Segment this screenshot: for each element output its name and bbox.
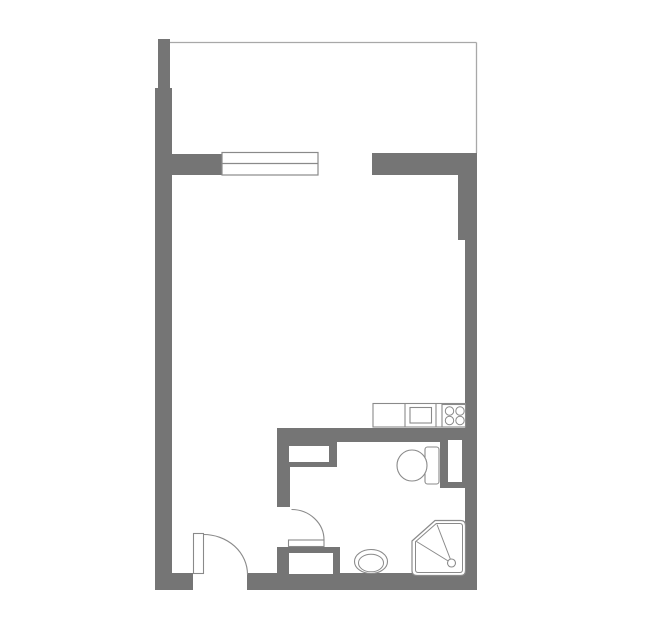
floorplan-svg	[0, 0, 659, 631]
entry-door-arc	[204, 535, 248, 575]
stove-burner-1	[445, 407, 453, 415]
right-wall-main	[465, 240, 477, 590]
toilet-bowl	[397, 450, 427, 481]
left-wall-main	[155, 88, 172, 590]
divider-wall-right	[372, 153, 477, 175]
floorplan-canvas	[0, 0, 659, 631]
duct-niche	[448, 440, 462, 482]
stove-burner-4	[456, 416, 464, 424]
washbasin-inner	[359, 554, 384, 572]
bottom-wall-left	[155, 573, 193, 590]
right-wall-upper	[458, 175, 477, 240]
bathroom-left-wall	[277, 428, 290, 507]
bathroom-door-arc	[292, 510, 325, 541]
stove-burner-2	[456, 407, 464, 415]
vanity-niche	[289, 553, 333, 574]
left-wall-upper	[158, 39, 170, 88]
shower-drain	[448, 559, 456, 567]
stove-burner-3	[445, 416, 453, 424]
entry-door-leaf	[194, 534, 204, 574]
divider-wall-left	[171, 154, 222, 175]
bathroom-door-leaf	[289, 540, 325, 547]
sink-basin	[410, 408, 432, 424]
closet-niche	[289, 446, 329, 462]
